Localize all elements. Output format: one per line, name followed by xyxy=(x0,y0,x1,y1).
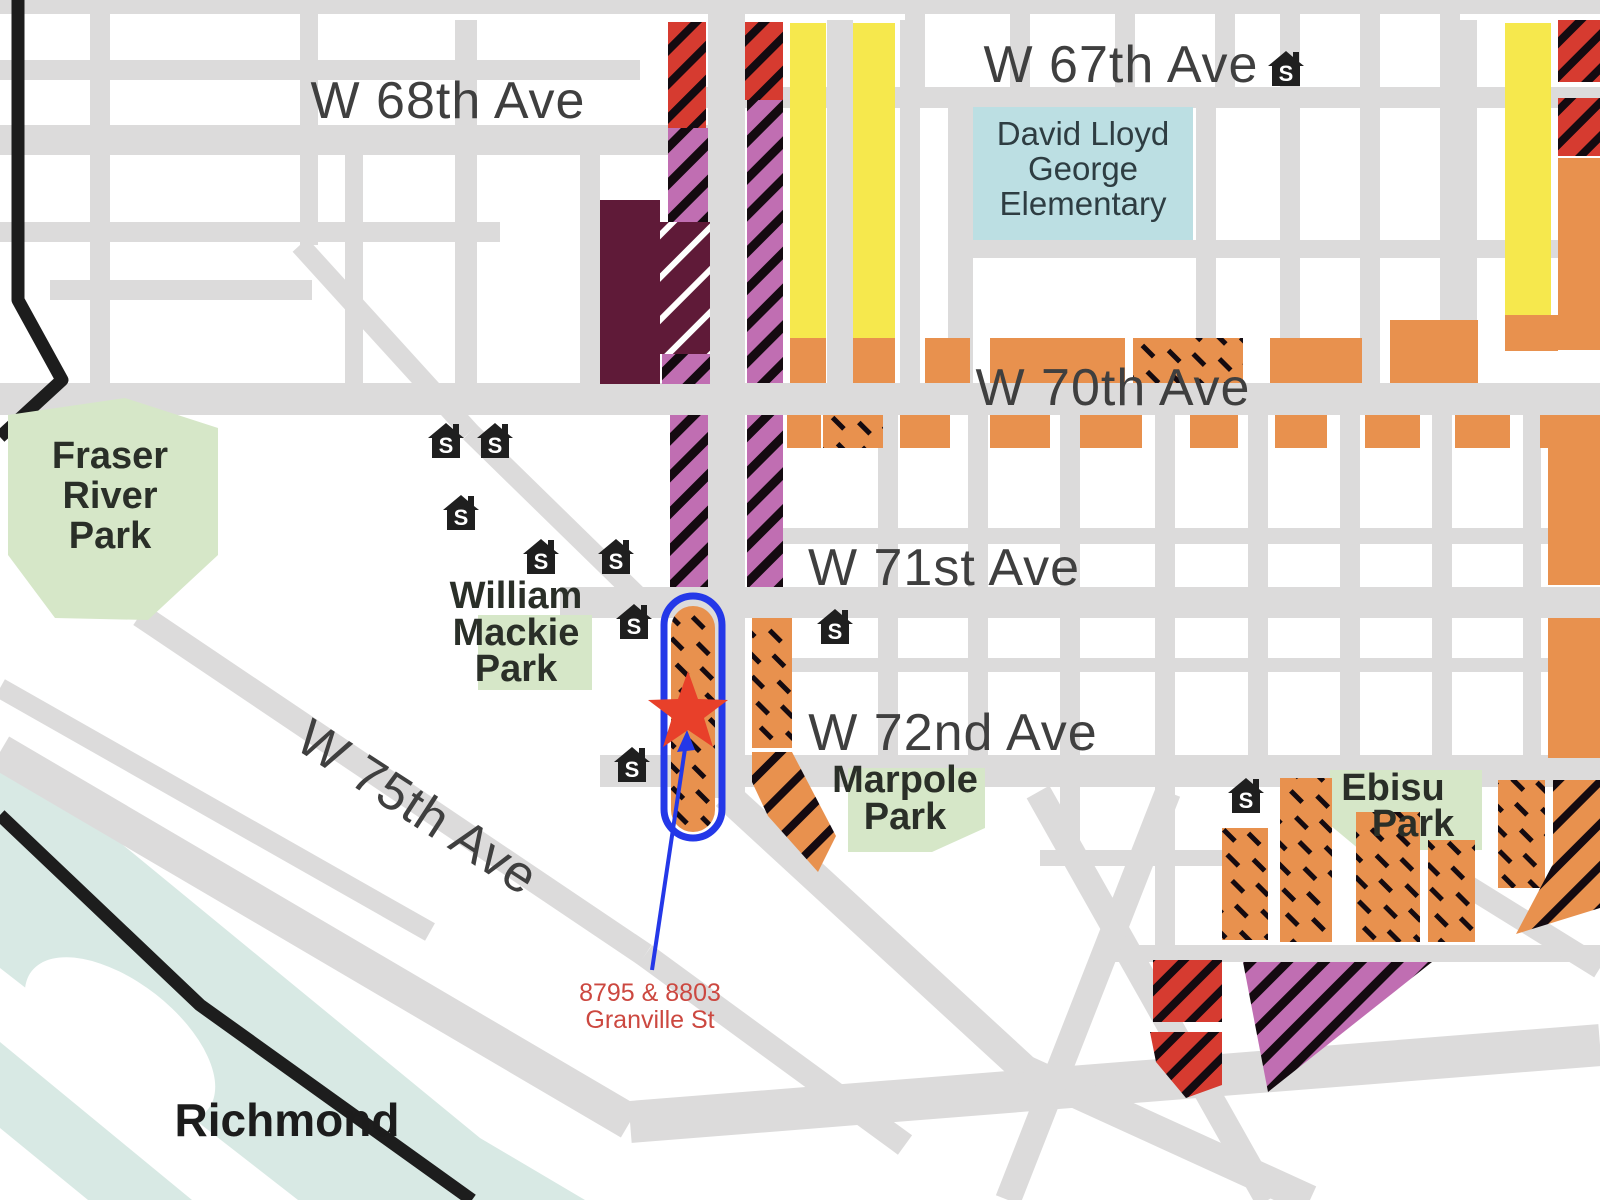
road-segment xyxy=(950,240,1600,258)
road-segment xyxy=(1155,415,1175,760)
zone-block-orange xyxy=(1365,415,1420,448)
zone-block-red xyxy=(1153,960,1222,1022)
zone-block-orange-dashed xyxy=(1498,780,1545,888)
zone-block-orange xyxy=(1455,415,1510,448)
road-segment xyxy=(0,222,500,242)
zone-block-orange xyxy=(1548,448,1600,585)
road-segment xyxy=(580,148,600,390)
road-segment xyxy=(1248,415,1268,760)
zone-block-purple xyxy=(747,415,783,587)
street-label-w71: W 71st Ave xyxy=(808,539,1080,597)
elementary-label: George xyxy=(1028,150,1138,187)
zoning-map: S xyxy=(0,0,1600,1200)
street-label-w72: W 72nd Ave xyxy=(808,704,1097,762)
zone-block-orange xyxy=(1558,158,1600,350)
fraser-park-label: Park xyxy=(69,515,152,557)
school-icon xyxy=(428,423,464,458)
school-icon xyxy=(1268,51,1304,86)
zone-block-yellow xyxy=(1505,23,1551,330)
zone-block-orange xyxy=(990,415,1050,448)
school-icon xyxy=(598,539,634,574)
fraser-park-label: Fraser xyxy=(52,435,168,477)
zone-block-red xyxy=(668,22,706,128)
zone-block-orange xyxy=(900,415,950,448)
elementary-label: David Lloyd xyxy=(997,115,1169,152)
site-address-label: Granville St xyxy=(585,1006,714,1034)
zone-block-purple xyxy=(747,100,783,383)
zone-block-maroon-hatched xyxy=(660,222,710,354)
school-icon xyxy=(614,747,650,782)
zone-block-orange xyxy=(1275,415,1327,448)
zone-block-yellow xyxy=(790,23,826,338)
zone-block-orange xyxy=(853,338,895,383)
road-segment xyxy=(1100,945,1600,962)
zone-block-orange xyxy=(790,338,826,383)
zone-block-orange xyxy=(1080,415,1142,448)
zone-block-orange-dashed xyxy=(752,618,792,748)
zone-block-orange xyxy=(1540,415,1600,448)
road-segment xyxy=(905,0,925,87)
zone-block-orange xyxy=(925,338,970,383)
mackie-park-label: William xyxy=(450,575,583,617)
road-segment xyxy=(1523,415,1541,760)
road-segment xyxy=(1360,0,1380,387)
zone-block-orange-dashed xyxy=(1428,840,1475,942)
site-address-label: 8795 & 8803 xyxy=(579,979,721,1007)
road-segment xyxy=(827,20,853,385)
zone-block-maroon xyxy=(600,200,660,384)
street-label-w68: W 68th Ave xyxy=(311,72,586,130)
zone-block-orange xyxy=(787,415,821,448)
street-label-w70: W 70th Ave xyxy=(976,359,1251,417)
zone-block-purple xyxy=(668,128,708,222)
marpole-park-label: Marpole xyxy=(832,759,978,801)
school-icon xyxy=(523,539,559,574)
zone-block-orange-dashed xyxy=(1222,828,1268,940)
zone-block-orange xyxy=(1505,315,1558,351)
road-segment xyxy=(1432,415,1452,760)
zone-block-red xyxy=(745,22,783,100)
zone-block-red xyxy=(1558,20,1600,82)
elementary-label: Elementary xyxy=(1000,185,1167,222)
road-w70 xyxy=(0,383,1600,415)
zone-block-orange xyxy=(1270,338,1362,383)
zone-block-orange xyxy=(1548,618,1600,758)
map-canvas: S xyxy=(0,0,1600,1200)
street-label-w67: W 67th Ave xyxy=(984,36,1259,94)
zone-block-orange-dashed xyxy=(1280,778,1332,942)
road-segment xyxy=(90,0,110,395)
zone-block-red xyxy=(1558,98,1600,156)
road-segment xyxy=(50,280,312,300)
fraser-park-label: River xyxy=(62,475,157,517)
road-segment xyxy=(345,155,363,390)
school-icon xyxy=(477,423,513,458)
zone-block-orange-dashed xyxy=(823,415,883,448)
road-segment xyxy=(1340,415,1360,760)
ebisu-park-label: Park xyxy=(1372,803,1455,845)
richmond-label: Richmond xyxy=(175,1094,400,1146)
zone-block-orange xyxy=(1190,415,1238,448)
marpole-park-label: Park xyxy=(864,796,947,838)
zone-block-purple xyxy=(670,415,708,587)
zone-block-yellow xyxy=(853,23,895,338)
zone-block-orange xyxy=(1390,320,1478,383)
mackie-park-label: Park xyxy=(475,648,558,690)
school-icon xyxy=(443,495,479,530)
